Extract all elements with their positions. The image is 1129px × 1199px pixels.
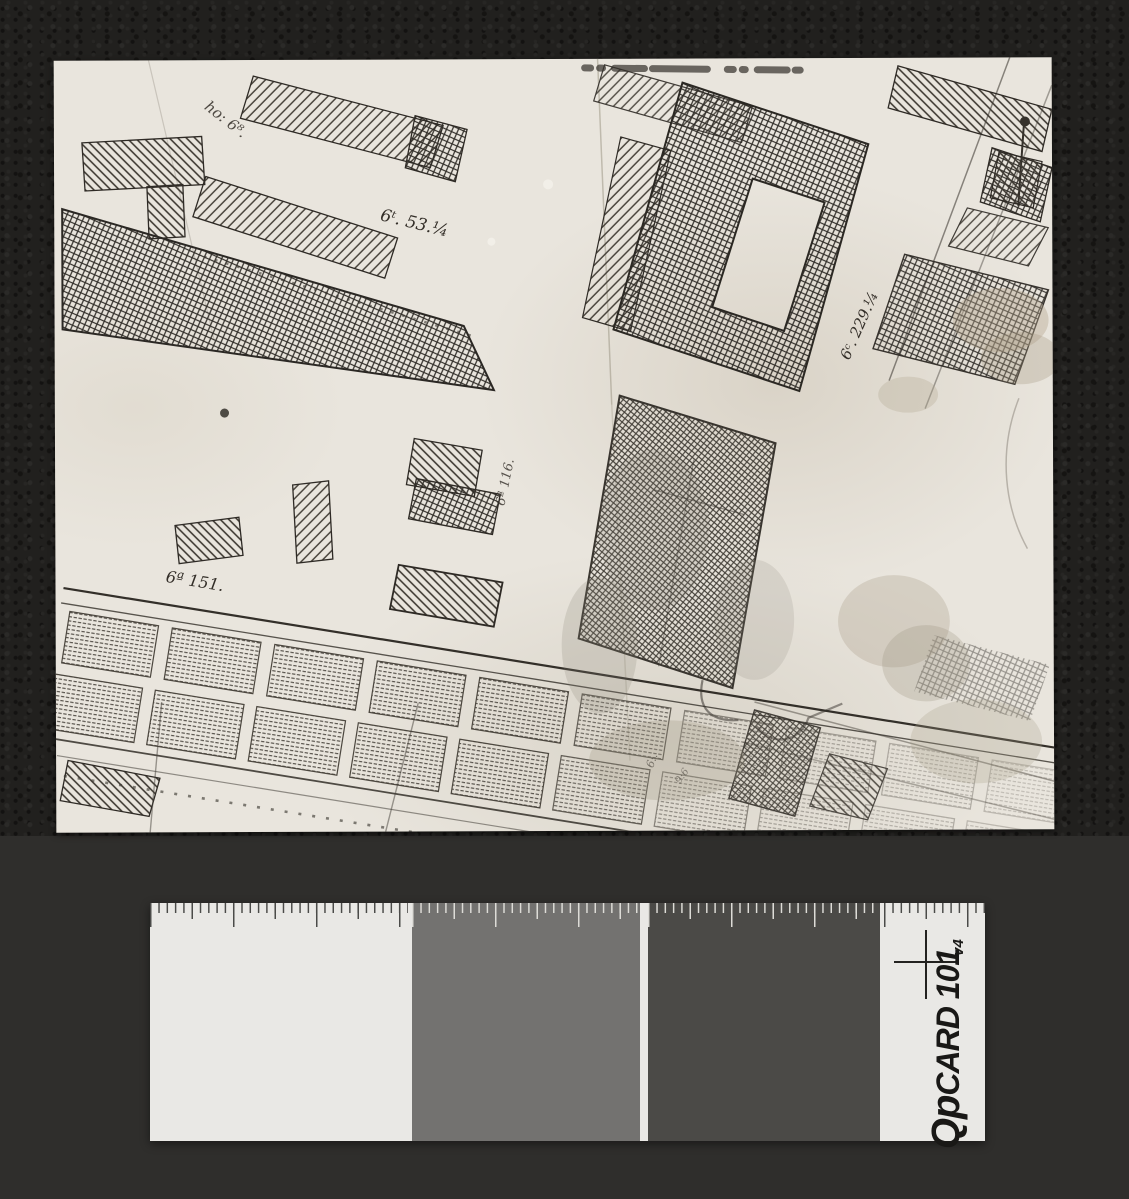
color-calibration-card: v4 QpCARD 101 — [150, 903, 985, 1141]
mid-gray-patch — [412, 903, 640, 1141]
map-photograph: ho: 6⁸. 6ᵗ. 53.¼ 6ᶜ. 229.¼ 6ª 116. 6ª 15… — [54, 57, 1055, 832]
ruler-ticks-white-patch — [150, 903, 408, 929]
qpcard-logo-suffix: CARD 101 — [930, 949, 967, 1096]
map-annotation: 6ª 116. — [494, 457, 518, 507]
ruler-ticks-label-area — [884, 903, 985, 929]
ruler-ticks-mid-patch — [412, 903, 640, 929]
leather-background: ho: 6⁸. 6ᵗ. 53.¼ 6ᶜ. 229.¼ 6ª 116. 6ª 15… — [0, 0, 1129, 1199]
dark-gray-patch — [648, 903, 880, 1141]
qpcard-logo-prefix: Qp — [924, 1096, 969, 1150]
map-annotation: 6ª 151. — [165, 567, 226, 595]
map-drawing: ho: 6⁸. 6ᵗ. 53.¼ 6ᶜ. 229.¼ 6ª 116. 6ª 15… — [54, 57, 1055, 832]
ruler-ticks-dark-patch — [648, 903, 880, 929]
map-annotation: 6ᶜ. 229.¼ — [836, 289, 882, 363]
qpcard-logo: QpCARD 101 — [924, 939, 964, 1159]
